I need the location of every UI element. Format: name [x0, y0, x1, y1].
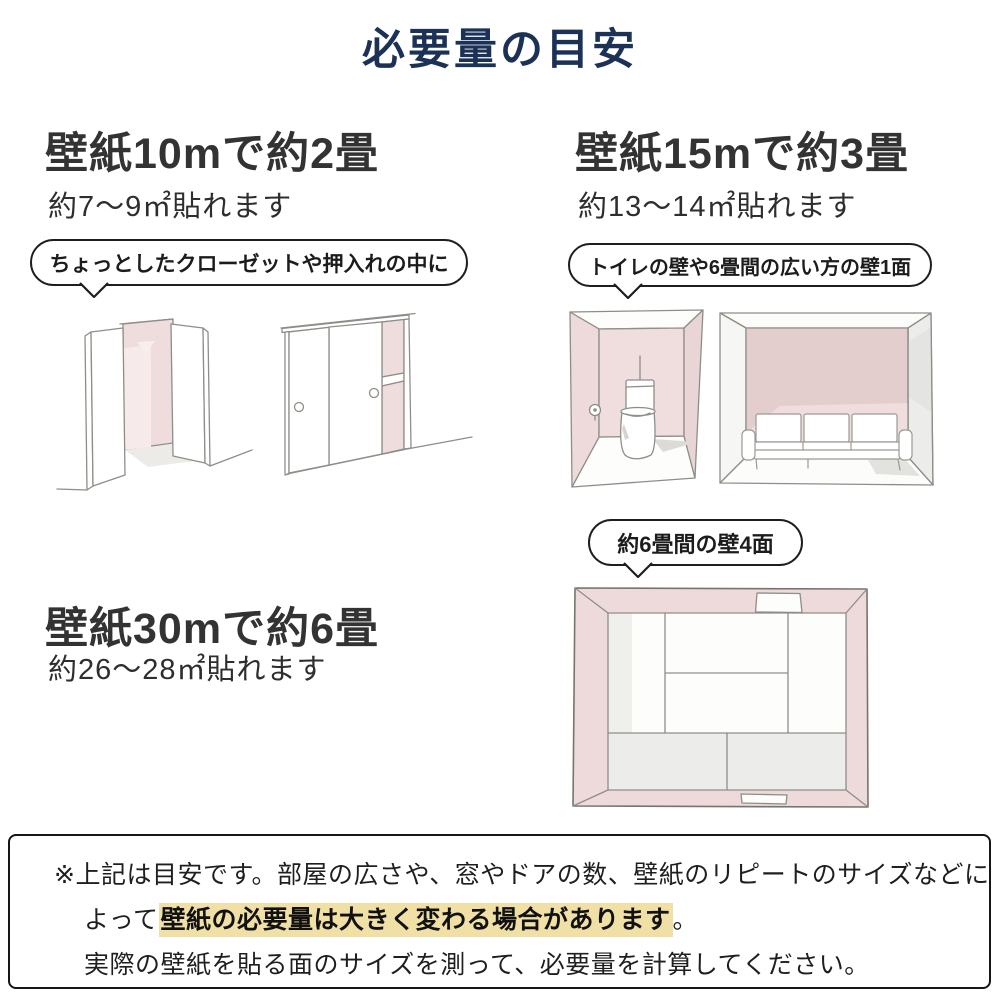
bubble-10m-label: ちょっとしたクローゼットや押入れの中に [50, 248, 449, 278]
heading-10m: 壁紙10mで約2畳 [45, 131, 379, 178]
wallpaper-quantity-guide: 必要量の目安 壁紙10mで約2畳 約7〜9㎡貼れます ちょっとしたクローゼットや… [0, 0, 1000, 1000]
closet-illustrations [45, 298, 475, 513]
bubble-tail [78, 282, 110, 299]
notes-line-2-suffix: 。 [673, 906, 699, 934]
heading-30m: 壁紙30mで約6畳 [45, 606, 379, 653]
sliding-closet-illustration [281, 314, 472, 476]
notes-line-1: ※上記は目安です。部屋の広さや、窓やドアの数、壁紙のリピートのサイズなどに [54, 853, 959, 898]
bubble-15m: トイレの壁や6畳間の広い方の壁1面 [568, 243, 932, 287]
bubble-10m: ちょっとしたクローゼットや押入れの中に [30, 239, 468, 286]
subheading-30m: 約26〜28㎡貼れます [48, 655, 327, 687]
bubble-tail [622, 562, 654, 579]
six-tatami-room-plan [570, 584, 872, 812]
page-title: 必要量の目安 [0, 27, 1000, 74]
notes-box: ※上記は目安です。部屋の広さや、窓やドアの数、壁紙のリピートのサイズなどに よっ… [8, 834, 991, 989]
notes-line-3: 実際の壁紙を貼る面のサイズを測って、必要量を計算してください。 [54, 943, 959, 988]
notes-line-2-prefix: よって [84, 906, 159, 934]
subheading-15m: 約13〜14㎡貼れます [578, 192, 857, 224]
open-closet-illustration [57, 319, 252, 490]
notes-highlight: 壁紙の必要量は大きく変わる場合があります [159, 903, 673, 937]
toilet-room-illustration [565, 300, 715, 512]
subheading-10m: 約7〜9㎡貼れます [48, 192, 292, 224]
bubble-30m-label: 約6畳間の壁4面 [617, 527, 773, 559]
bubble-tail [612, 283, 644, 300]
heading-15m: 壁紙15mで約3畳 [575, 131, 909, 178]
notes-line-2: よって壁紙の必要量は大きく変わる場合があります。 [54, 898, 959, 943]
bubble-15m-label: トイレの壁や6畳間の広い方の壁1面 [589, 251, 911, 280]
living-room-illustration [718, 302, 986, 510]
bubble-30m: 約6畳間の壁4面 [588, 519, 803, 566]
